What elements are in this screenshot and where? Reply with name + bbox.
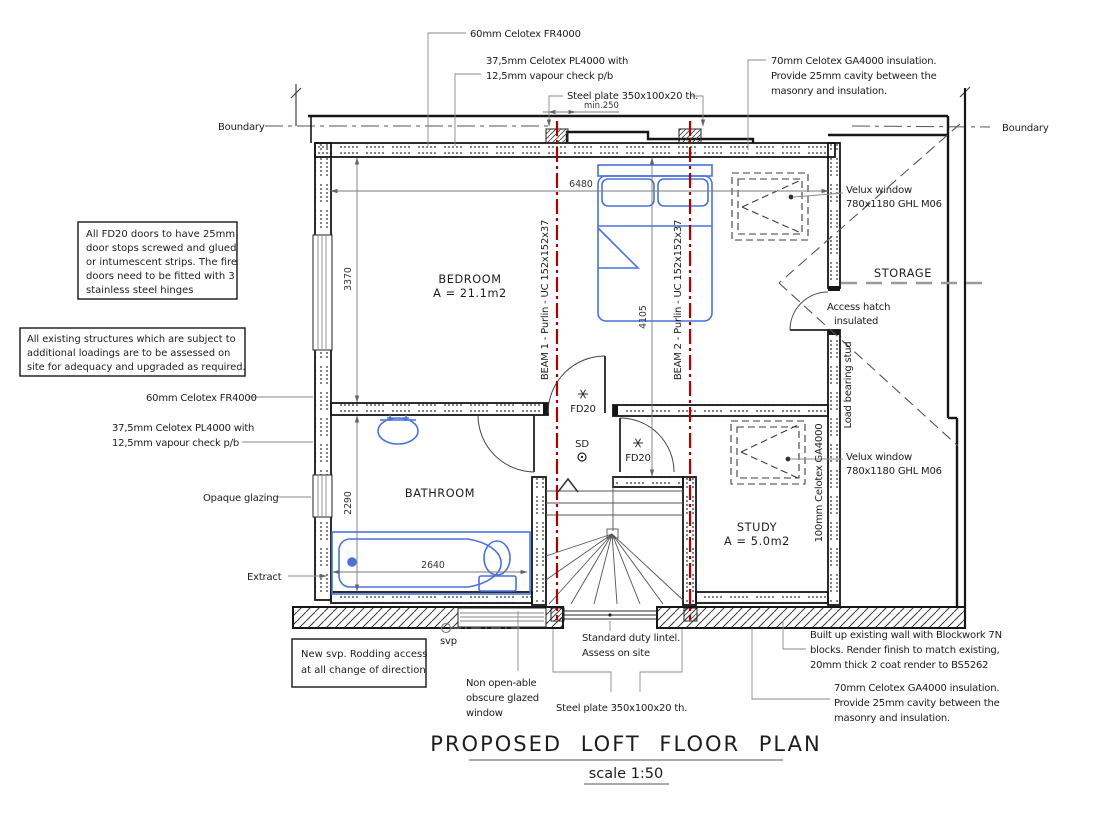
room-storage: STORAGE: [874, 267, 932, 280]
study-bottom-wall: [696, 592, 828, 603]
svg-text:masonry and insulation.: masonry and insulation.: [771, 86, 887, 97]
callout-celotex-pl4000-left: 37,5mm Celotex PL4000 with: [112, 423, 254, 434]
dim-bedroom-depth: 3370: [343, 267, 354, 291]
dim-bathroom-depth: 2290: [343, 491, 354, 515]
hall-study-wall: [613, 405, 828, 416]
svg-text:Assess on site: Assess on site: [582, 648, 650, 659]
storage-divider-upper: [828, 143, 840, 288]
callout-celotex-fr4000-top: 60mm Celotex FR4000: [470, 29, 581, 40]
storage-divider-lower: [828, 330, 840, 605]
callout-steel-plate-bottom: Steel plate 350x100x20 th.: [556, 703, 687, 714]
callout-velux-top: Velux window: [846, 185, 912, 196]
room-bedroom-area: A = 21.1m2: [433, 287, 507, 300]
room-bathroom: BATHROOM: [405, 487, 475, 500]
callout-extract: Extract: [247, 572, 282, 583]
svg-text:780x1180 GHL M06: 780x1180 GHL M06: [846, 466, 942, 477]
callout-access-hatch: Access hatch: [827, 302, 890, 313]
svg-text:insulated: insulated: [834, 316, 878, 327]
svg-text:at all change of direction: at all change of direction: [301, 665, 426, 676]
callout-velux-study: Velux window: [846, 452, 912, 463]
dim-hall-depth: 4105: [638, 305, 649, 329]
non-openable-window: [458, 608, 546, 627]
svg-text:site for adequacy and upgraded: site for adequacy and upgraded as requir…: [27, 362, 246, 373]
svg-text:obscure glazed: obscure glazed: [466, 693, 539, 704]
room-bedroom: BEDROOM: [438, 273, 501, 286]
bedroom-window: [313, 235, 332, 350]
stair-left-wall: [532, 477, 546, 605]
beam-1-label: BEAM 1 - Purlin - UC 152x152x37: [540, 220, 551, 380]
callout-svp: svp: [440, 636, 457, 647]
page-scale: scale 1:50: [589, 766, 664, 782]
callout-celotex-fr4000-left: 60mm Celotex FR4000: [146, 393, 257, 404]
svg-text:20mm thick 2 coat render to BS: 20mm thick 2 coat render to BS5262: [810, 660, 988, 671]
svg-text:Provide 25mm cavity between th: Provide 25mm cavity between the: [771, 71, 937, 82]
callout-non-openable: Non open-able: [466, 678, 537, 689]
svg-text:12,5mm vapour check p/b: 12,5mm vapour check p/b: [486, 71, 613, 82]
door-label-hall-fd20: FD20: [570, 404, 595, 415]
callout-celotex-ga4000-wall: 100mm Celotex GA4000: [814, 424, 825, 543]
svg-text:or intumescent strips. The fir: or intumescent strips. The fire: [86, 257, 237, 268]
svg-text:additional loadings are to be: additional loadings are to be assessed o…: [27, 348, 230, 359]
stair-top-wall: [613, 477, 683, 487]
svg-text:Provide 25mm cavity between th: Provide 25mm cavity between the: [834, 698, 1000, 709]
svg-text:All FD20 doors to have 25mm: All FD20 doors to have 25mm: [86, 229, 235, 240]
svg-text:New svp. Rodding access: New svp. Rodding access: [301, 649, 427, 660]
bath-tap: [348, 558, 356, 566]
svg-text:doors need to be fitted with 3: doors need to be fitted with 3: [86, 271, 235, 282]
dim-bath-length: 2640: [421, 560, 445, 571]
smoke-detector-label: SD: [575, 439, 589, 450]
dim-overall-width: 6480: [569, 179, 593, 190]
callout-celotex-ga4000-bottom: 70mm Celotex GA4000 insulation.: [834, 683, 999, 694]
bathroom-top-wall: [331, 403, 548, 415]
svg-text:window: window: [466, 708, 503, 719]
svg-text:780x1180 GHL M06: 780x1180 GHL M06: [846, 199, 942, 210]
room-study-area: A = 5.0m2: [724, 535, 790, 548]
callout-steel-plate-top: Steel plate 350x100x20 th.: [567, 91, 698, 102]
bathroom-window: [313, 475, 332, 517]
room-study: STUDY: [737, 521, 777, 534]
callout-celotex-pl4000-top: 37,5mm Celotex PL4000 with: [486, 56, 628, 67]
boundary-right-label: Boundary: [1002, 123, 1049, 134]
svg-text:masonry and insulation.: masonry and insulation.: [834, 713, 950, 724]
page-title: PROPOSED LOFT FLOOR PLAN: [430, 732, 821, 756]
floor-plan-drawing: 6480 4105 3370 2290 2640 min.250 60mm Ce…: [0, 0, 1094, 816]
left-wall: [315, 143, 331, 600]
svg-text:blocks. Render finish to match: blocks. Render finish to match existing,: [810, 645, 1000, 656]
svg-text:All existing structures which: All existing structures which are subjec…: [27, 334, 236, 345]
callout-blockwork: Built up existing wall with Blockwork 7N: [810, 630, 1002, 641]
door-label-study-fd20: FD20: [625, 453, 650, 464]
dim-min-clearance: min.250: [584, 101, 619, 111]
floor-plan-page: 6480 4105 3370 2290 2640 min.250 60mm Ce…: [0, 0, 1094, 816]
svg-text:door stops screwed and glued: door stops screwed and glued: [86, 243, 236, 254]
svg-text:12,5mm vapour check p/b: 12,5mm vapour check p/b: [112, 438, 239, 449]
boundary-left-label: Boundary: [218, 122, 265, 133]
beam-2-label: BEAM 2 - Purlin - UC 152x152x37: [673, 220, 684, 380]
top-wall: [315, 143, 835, 157]
callout-lintel: Standard duty lintel.: [582, 633, 680, 644]
callout-opaque-glazing: Opaque glazing: [203, 493, 279, 504]
note-box-svp: [292, 639, 426, 687]
callout-celotex-ga4000-top: 70mm Celotex GA4000 insulation.: [771, 56, 936, 67]
callout-load-bearing-stud: Load bearing stud: [843, 342, 854, 429]
svg-text:stainless steel hinges: stainless steel hinges: [86, 285, 193, 296]
bottom-wall-right: [657, 607, 965, 628]
